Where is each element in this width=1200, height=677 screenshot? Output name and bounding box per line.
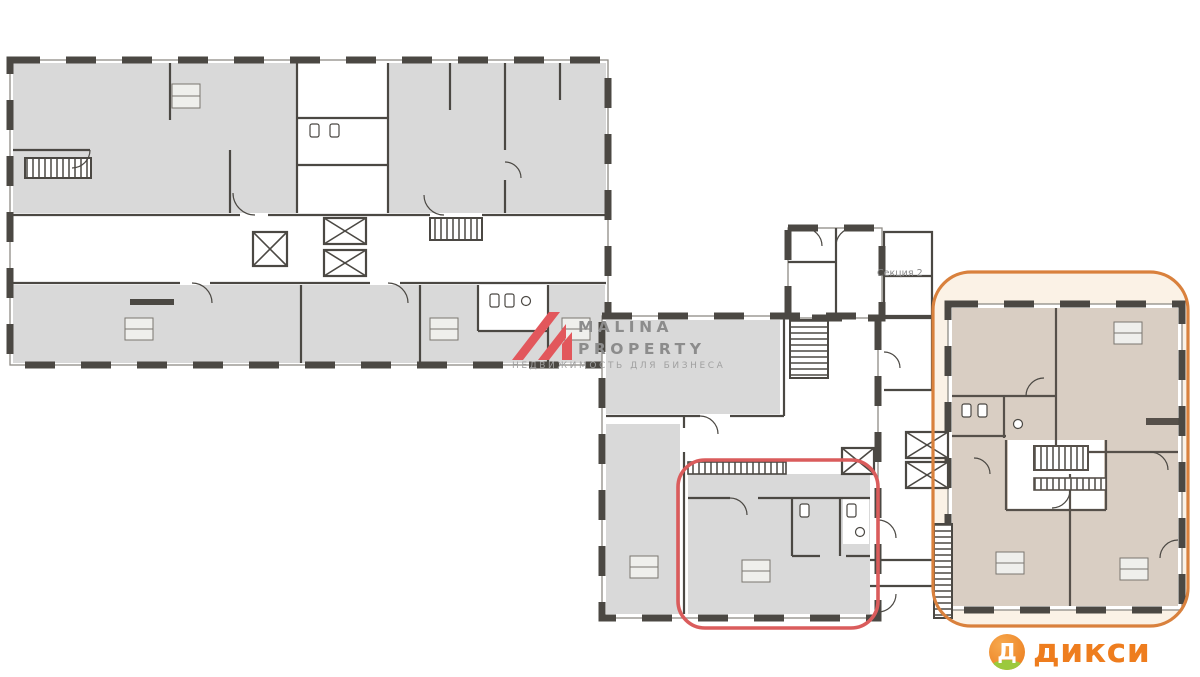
section-label: Секция 2 bbox=[877, 268, 923, 279]
orange-highlight-zone bbox=[906, 272, 1188, 626]
watermark-tagline: НЕДВИЖИМОСТЬ ДЛЯ БИЗНЕСА bbox=[512, 361, 725, 371]
floor-plan-canvas: MALINA PROPERTY НЕДВИЖИМОСТЬ ДЛЯ БИЗНЕСА… bbox=[0, 0, 1200, 677]
staircase bbox=[430, 218, 482, 240]
balcony-hatch bbox=[688, 462, 786, 474]
staircase bbox=[25, 158, 91, 178]
staircase bbox=[790, 320, 828, 378]
balcony-hatch bbox=[1034, 478, 1106, 490]
dixy-logo: Д дикси bbox=[989, 631, 1150, 674]
plan-mark bbox=[130, 299, 174, 305]
dixy-wordmark: дикси bbox=[1033, 631, 1150, 670]
dixy-logo-icon: Д bbox=[989, 634, 1025, 674]
floor-plan-image: MALINA PROPERTY НЕДВИЖИМОСТЬ ДЛЯ БИЗНЕСА… bbox=[0, 0, 1200, 677]
staircase bbox=[1034, 446, 1088, 470]
watermark-line2: PROPERTY bbox=[578, 340, 705, 358]
beige-building bbox=[948, 304, 1182, 610]
right-wing bbox=[602, 228, 948, 618]
watermark-line1: MALINA bbox=[578, 318, 673, 336]
plan-mark bbox=[1146, 418, 1180, 425]
left-wing bbox=[10, 60, 608, 365]
dixy-letter: Д bbox=[997, 641, 1017, 666]
elevator-shaft bbox=[253, 232, 287, 266]
